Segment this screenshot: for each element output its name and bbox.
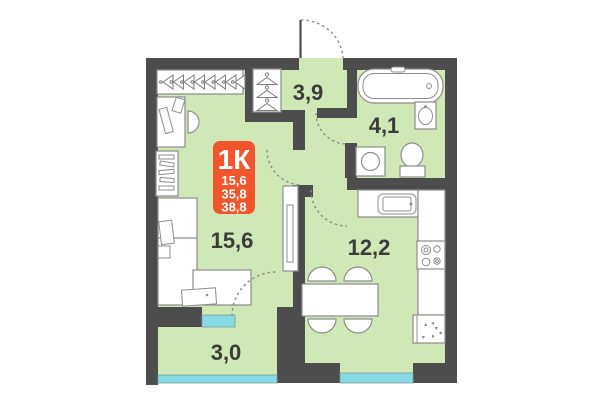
room-label-balcony: 3,0 bbox=[211, 340, 242, 365]
apartment-badge: 1К 15,6 35,8 38,8 bbox=[213, 141, 255, 215]
cabinet-door-line bbox=[287, 205, 293, 262]
room-label-kitchen: 12,2 bbox=[348, 235, 391, 260]
room-label-bathroom: 4,1 bbox=[369, 113, 400, 138]
washing-machine-icon bbox=[356, 147, 385, 176]
wall-segment bbox=[347, 178, 445, 190]
bathtub-faucet-icon bbox=[391, 67, 405, 72]
floorplan-svg: 3,9 4,1 15,6 12,2 3,0 1К 15,6 35,8 38,8 bbox=[0, 0, 600, 400]
wall-segment bbox=[345, 143, 357, 178]
window-balcony-glazing bbox=[158, 375, 277, 383]
wall-segment bbox=[347, 68, 357, 112]
wall-segment bbox=[245, 70, 253, 112]
badge-type-label: 1К bbox=[218, 144, 252, 175]
wall-segment bbox=[146, 58, 299, 70]
wall-segment bbox=[445, 58, 457, 383]
dining-table-icon bbox=[302, 284, 378, 316]
sink-tap bbox=[424, 105, 427, 108]
coat-hangers-row-icon bbox=[160, 75, 246, 89]
wall-segment bbox=[413, 363, 457, 383]
wall-segment bbox=[158, 307, 202, 327]
room-label-living: 15,6 bbox=[211, 228, 254, 253]
window-kitchen bbox=[340, 373, 413, 383]
door-swing-arc-entry bbox=[301, 20, 343, 58]
bedside-shelf-icon bbox=[158, 246, 170, 258]
badge-area-total: 38,8 bbox=[221, 200, 246, 215]
floorplan-canvas: 3,9 4,1 15,6 12,2 3,0 1К 15,6 35,8 38,8 bbox=[0, 0, 600, 400]
stove-icon bbox=[417, 241, 445, 269]
window-balcony-door-sidelight bbox=[202, 315, 235, 327]
room-label-hall: 3,9 bbox=[293, 80, 324, 105]
wall-segment bbox=[146, 58, 158, 385]
kitchen-sink-basin bbox=[383, 197, 411, 211]
toilet-icon bbox=[400, 143, 425, 177]
wall-segment bbox=[293, 122, 305, 150]
wall-segment bbox=[298, 363, 340, 383]
wall-segment bbox=[305, 185, 313, 197]
fridge-icon bbox=[413, 315, 445, 343]
bed-pillow-icon bbox=[159, 220, 175, 244]
kitchen-sink-tap bbox=[410, 203, 413, 206]
laptop-icon bbox=[181, 288, 216, 306]
